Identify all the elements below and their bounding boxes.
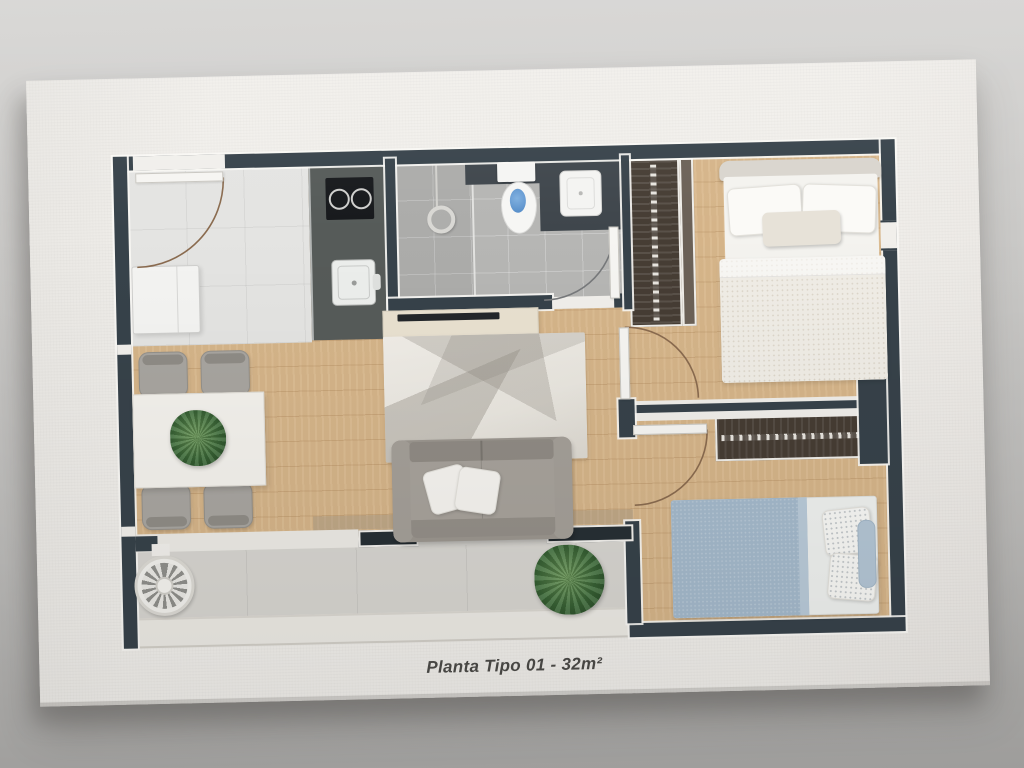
floor-plan [113, 131, 906, 649]
poster-board: Planta Tipo 01 - 32m² [26, 59, 990, 706]
door-swing-arcs [113, 131, 906, 649]
entry-door-leaf [135, 171, 223, 183]
bedroom1-door-leaf [619, 327, 631, 399]
plan-caption: Planta Tipo 01 - 32m² [39, 645, 989, 687]
bathroom-door-leaf [608, 226, 620, 298]
photo-of-floorplan: { "caption": { "text": "Planta Tipo 01 -… [0, 0, 1024, 768]
bedroom2-door-leaf [633, 423, 707, 435]
